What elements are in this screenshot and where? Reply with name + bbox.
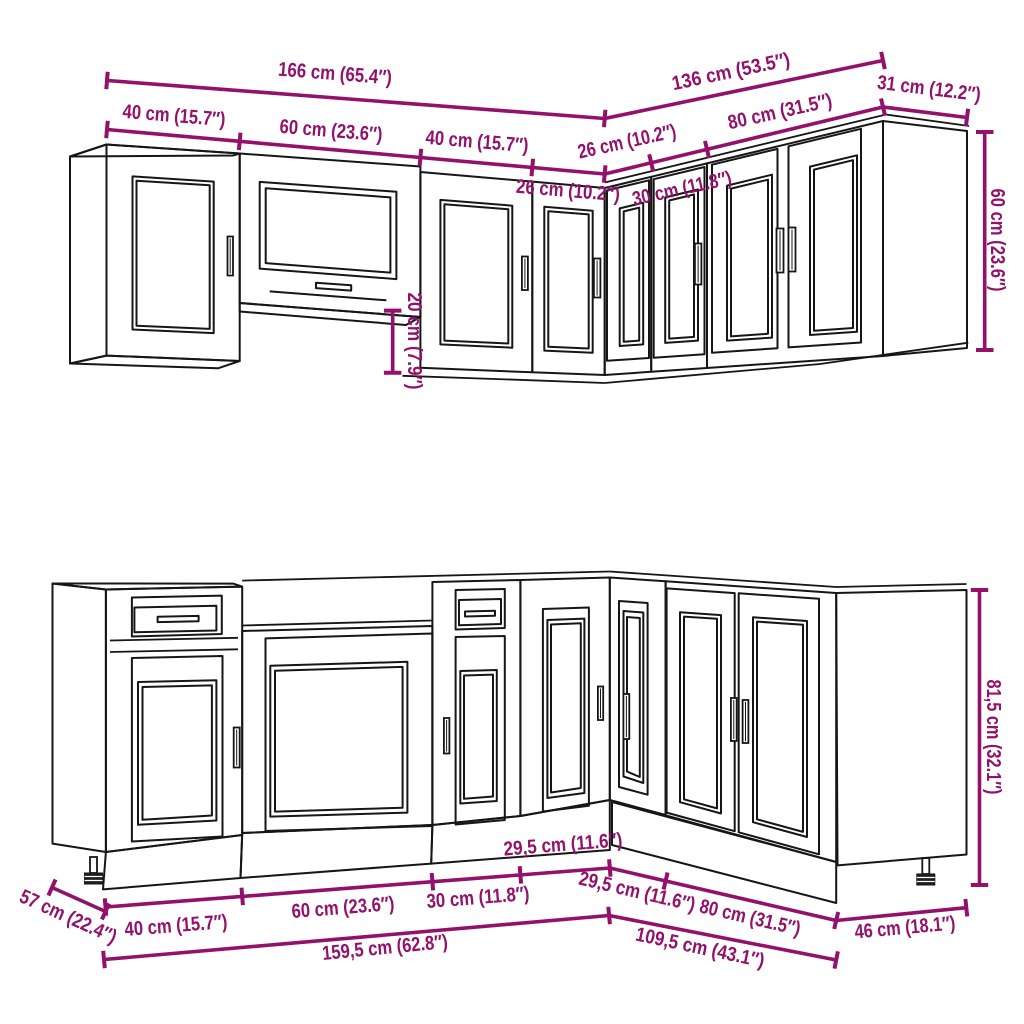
svg-text:81,5 cm (32.1″): 81,5 cm (32.1″) [982,680,1004,795]
svg-text:20 cm (7.9″): 20 cm (7.9″) [403,293,425,390]
svg-text:60 cm (23.6″): 60 cm (23.6″) [986,189,1008,292]
